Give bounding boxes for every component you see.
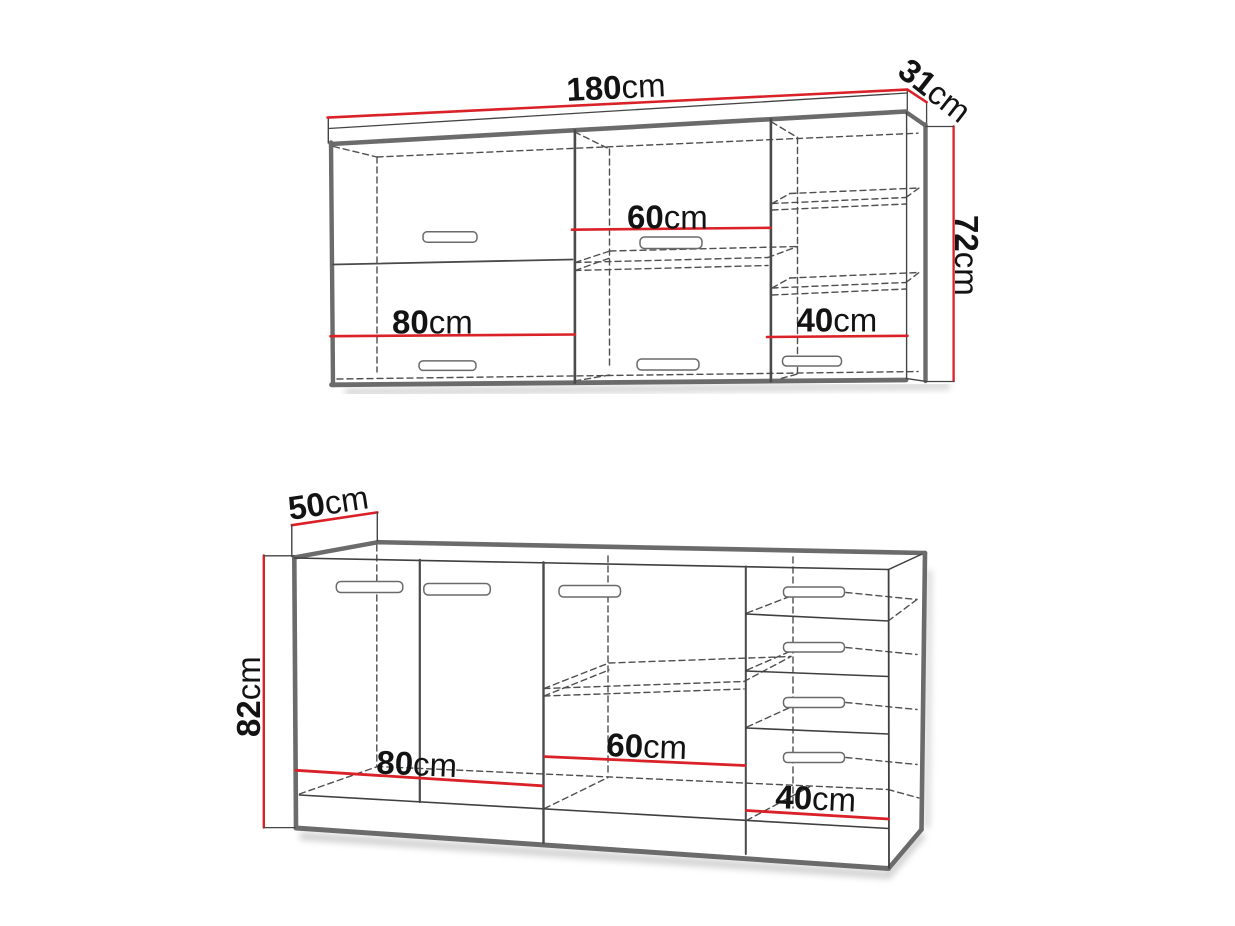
svg-text:180cm: 180cm <box>566 66 667 108</box>
svg-text:40cm: 40cm <box>775 778 857 818</box>
svg-text:82cm: 82cm <box>230 656 267 737</box>
svg-text:80cm: 80cm <box>392 304 473 341</box>
svg-text:60cm: 60cm <box>627 199 708 236</box>
svg-text:40cm: 40cm <box>797 302 878 339</box>
svg-text:80cm: 80cm <box>376 744 458 784</box>
svg-text:72cm: 72cm <box>948 215 985 296</box>
svg-text:60cm: 60cm <box>606 726 688 766</box>
